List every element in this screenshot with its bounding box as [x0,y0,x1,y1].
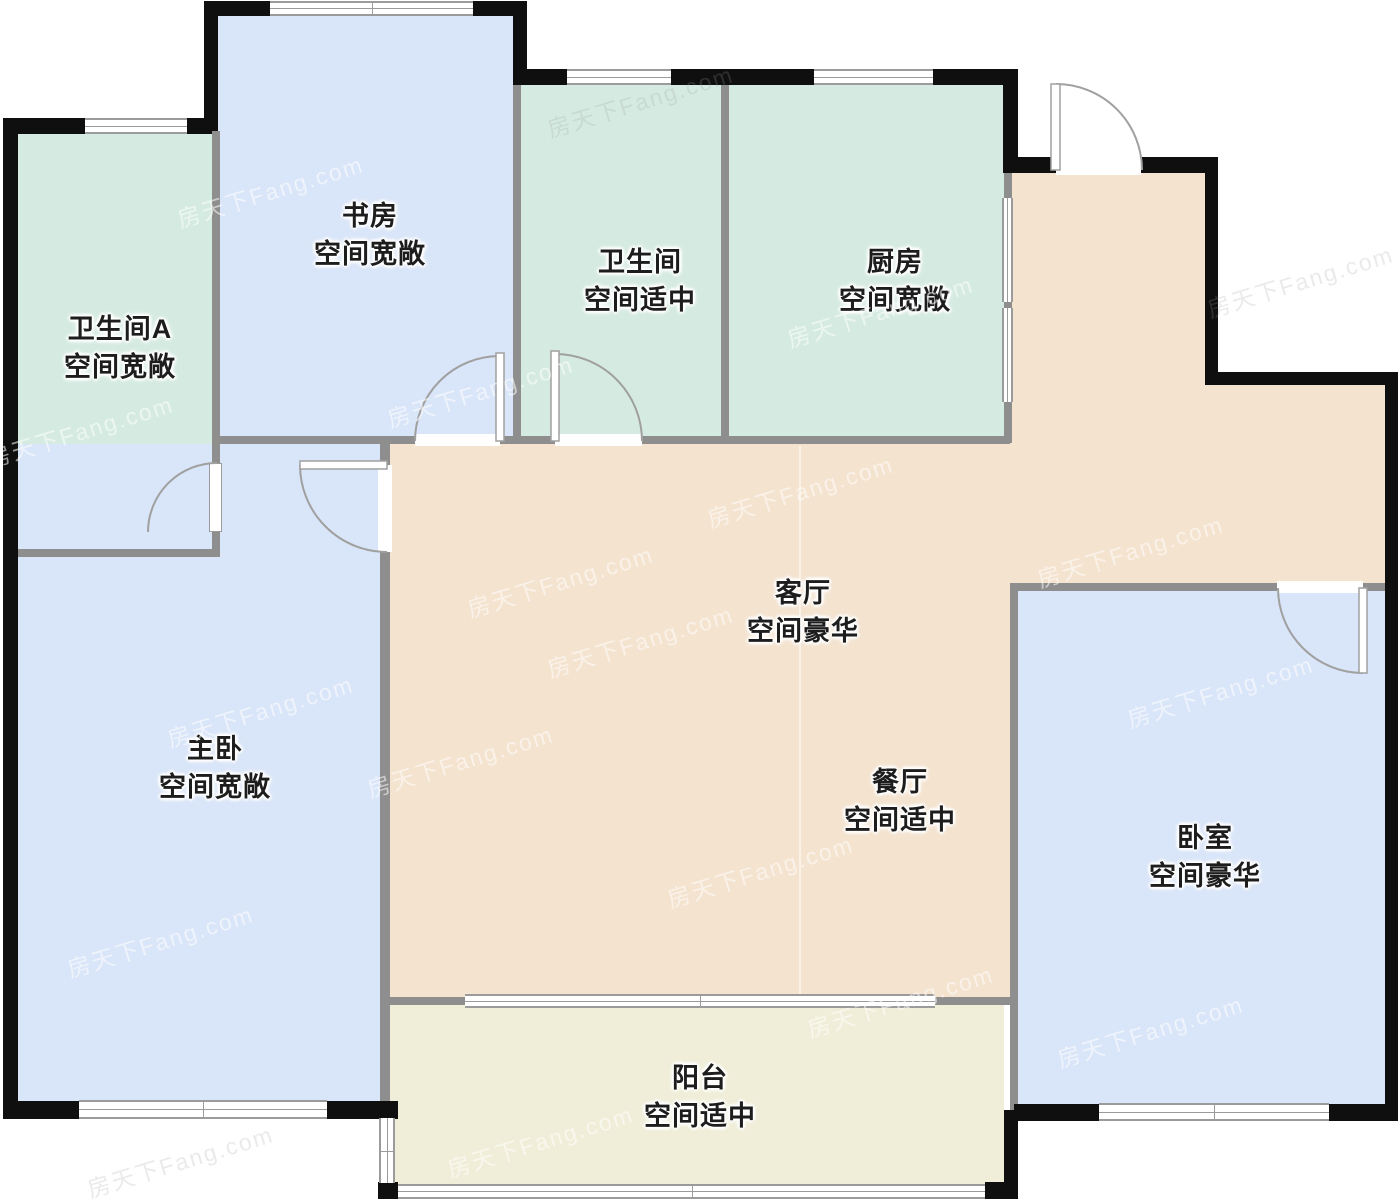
bedroom-label: 卧室 空间豪华 [1149,819,1261,895]
room-name: 客厅 [747,574,859,612]
room-quality: 空间豪华 [1149,857,1261,895]
room-name: 卧室 [1149,819,1261,857]
master-bedroom-door-leaf [300,461,387,469]
bedroom-door-arc [1278,588,1363,673]
bathroom-a-door-arc [148,463,217,532]
balcony-label: 阳台 空间适中 [644,1059,756,1135]
dining-room-label: 餐厅 空间适中 [844,763,956,839]
bathroom-door-leaf [551,351,559,441]
room-quality: 空间适中 [584,281,696,319]
room-quality: 空间宽敞 [159,768,271,806]
master-bedroom-label: 主卧 空间宽敞 [159,730,271,806]
bathroom-a-label: 卫生间A 空间宽敞 [64,310,176,386]
room-name: 卫生间A [64,310,176,348]
room-name: 卫生间 [584,243,696,281]
room-name: 餐厅 [844,763,956,801]
room-name: 阳台 [644,1059,756,1097]
room-quality: 空间适中 [644,1097,756,1135]
room-quality: 空间宽敞 [314,235,426,273]
study-door-arc [415,356,500,441]
room-name: 厨房 [839,243,951,281]
room-quality: 空间宽敞 [64,348,176,386]
room-quality: 空间宽敞 [839,281,951,319]
floor-plan: 卫生间A 空间宽敞 书房 空间宽敞 卫生间 空间适中 厨房 空间宽敞 主卧 空间… [0,0,1400,1202]
room-quality: 空间适中 [844,801,956,839]
master-bedroom-door-arc [300,465,387,552]
room-name: 书房 [314,197,426,235]
study-label: 书房 空间宽敞 [314,197,426,273]
entry-door-leaf [1051,84,1060,170]
room-name: 主卧 [159,730,271,768]
study-door-leaf [496,353,504,441]
bathroom-label: 卫生间 空间适中 [584,243,696,319]
kitchen-label: 厨房 空间宽敞 [839,243,951,319]
door-swings [0,0,1400,1202]
bedroom-door-leaf [1359,588,1367,673]
bathroom-door-arc [555,354,642,441]
living-room-label: 客厅 空间豪华 [747,574,859,650]
room-quality: 空间豪华 [747,612,859,650]
entry-door-arc [1056,84,1142,170]
